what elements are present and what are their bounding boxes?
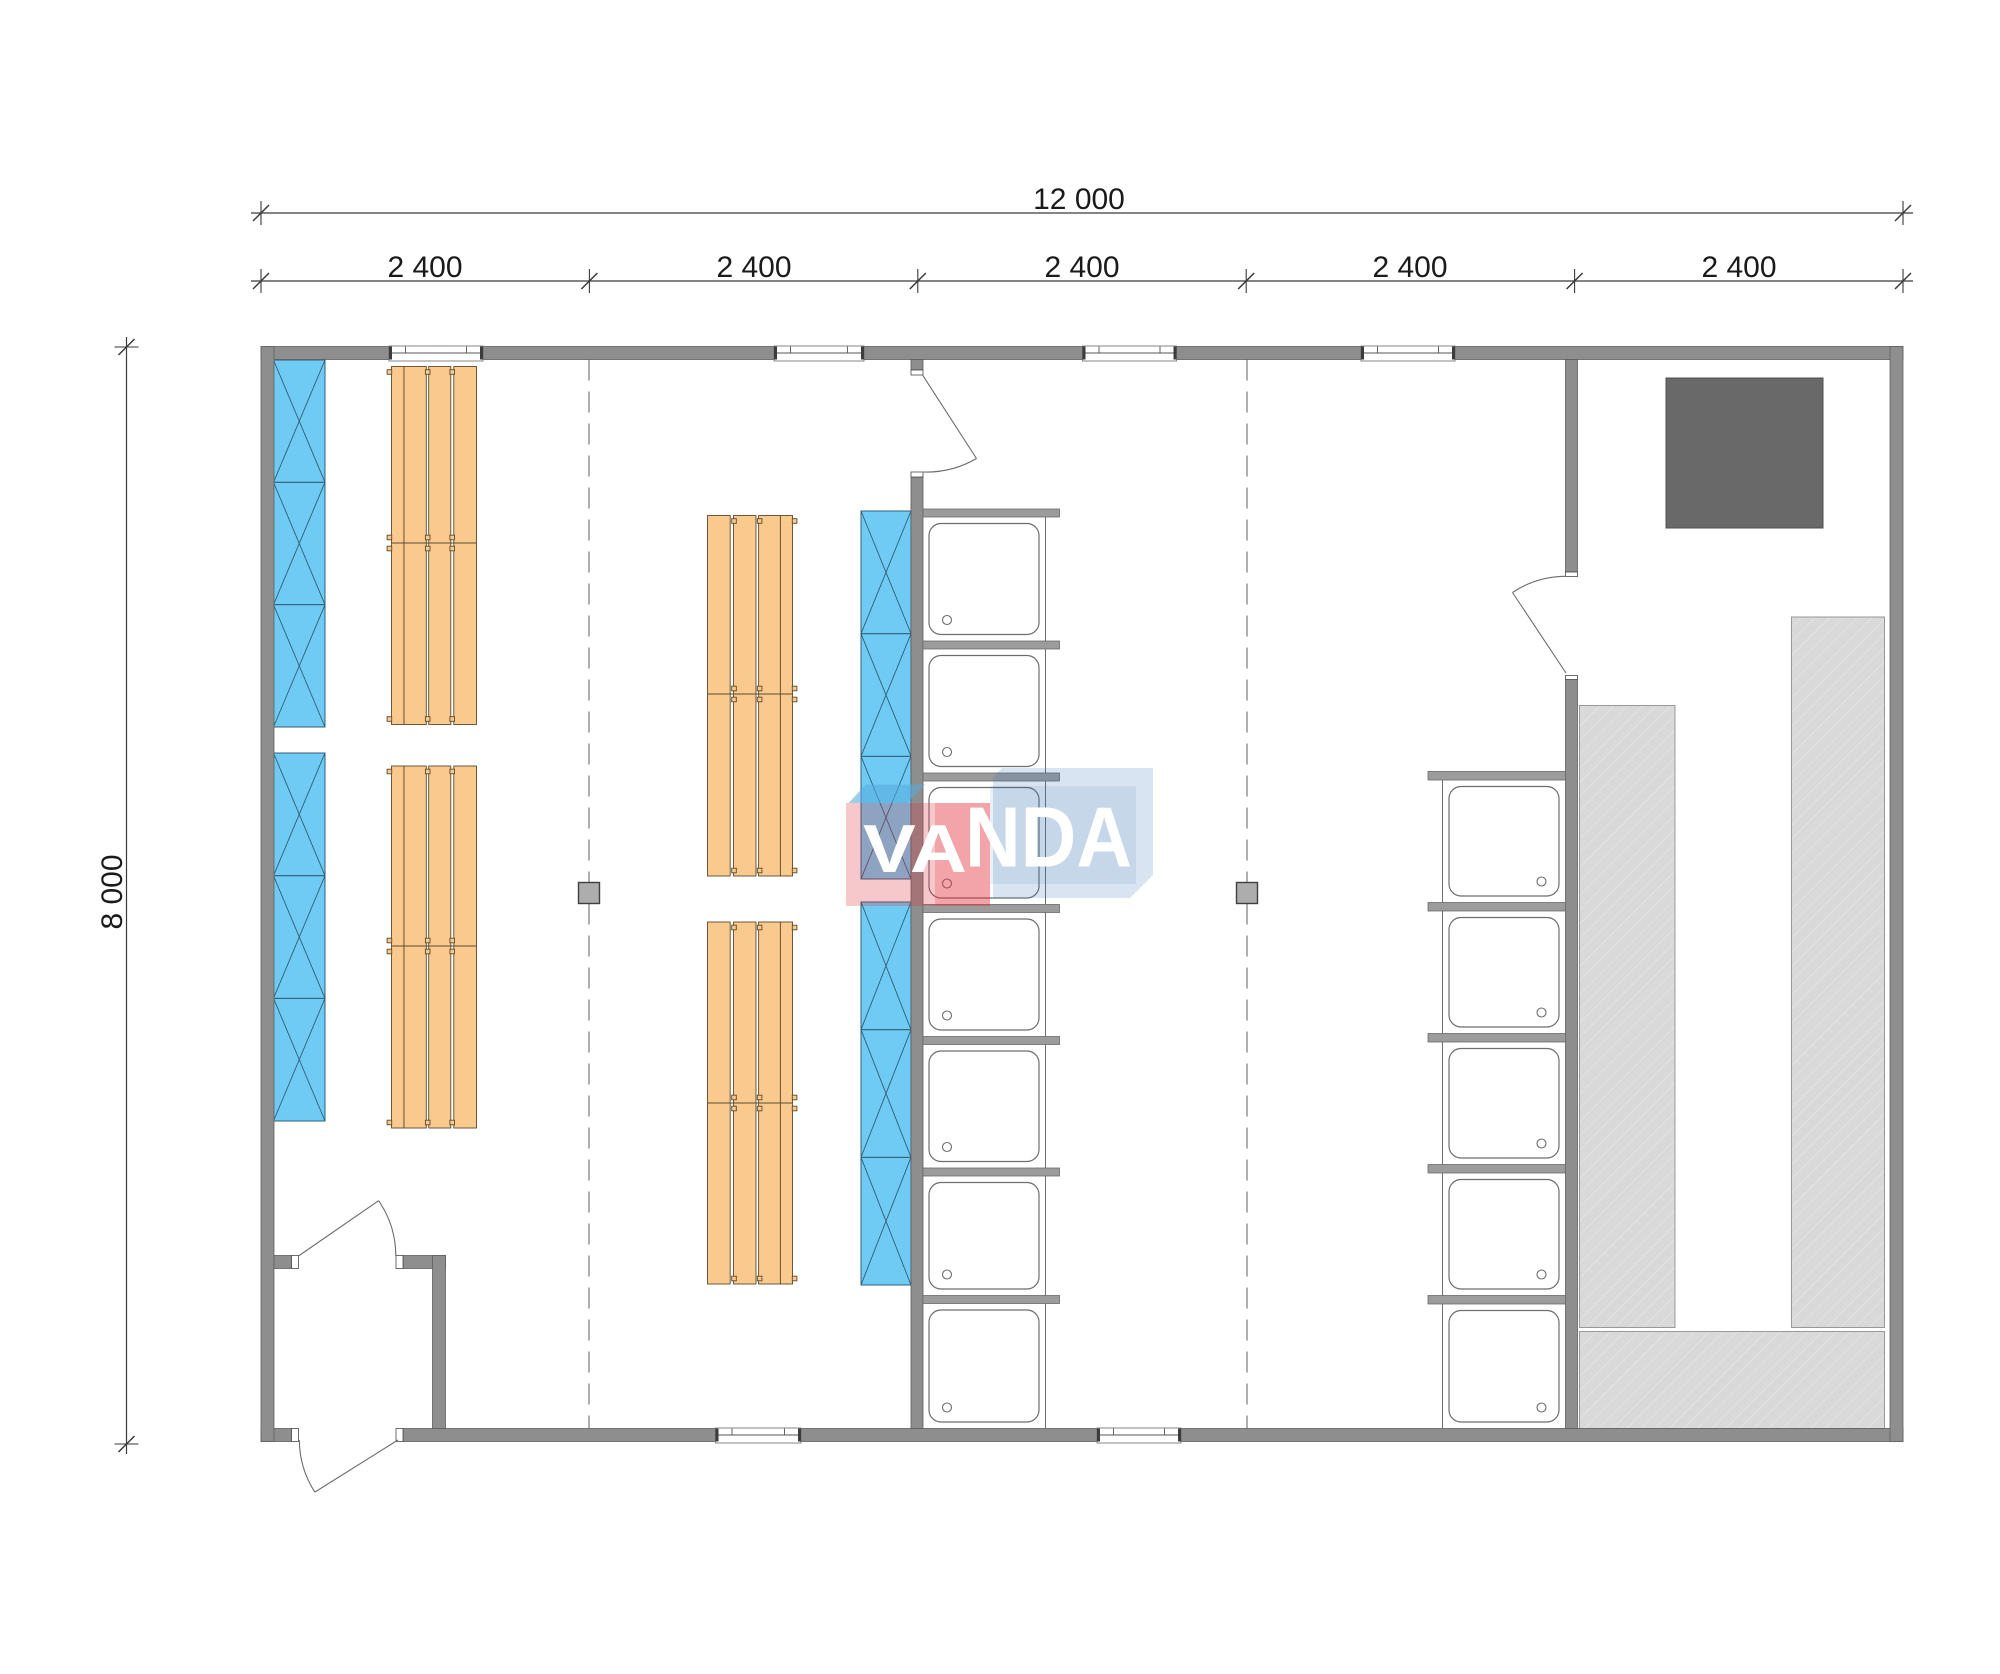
svg-text:8 000: 8 000 — [96, 854, 129, 929]
svg-text:12 000: 12 000 — [1033, 183, 1125, 216]
svg-text:2 400: 2 400 — [1701, 251, 1776, 284]
svg-text:2 400: 2 400 — [1044, 251, 1119, 284]
svg-text:2 400: 2 400 — [387, 251, 462, 284]
svg-text:2 400: 2 400 — [1372, 251, 1447, 284]
svg-text:VA: VA — [863, 811, 967, 887]
svg-text:2 400: 2 400 — [716, 251, 791, 284]
svg-text:NDA: NDA — [965, 791, 1132, 886]
